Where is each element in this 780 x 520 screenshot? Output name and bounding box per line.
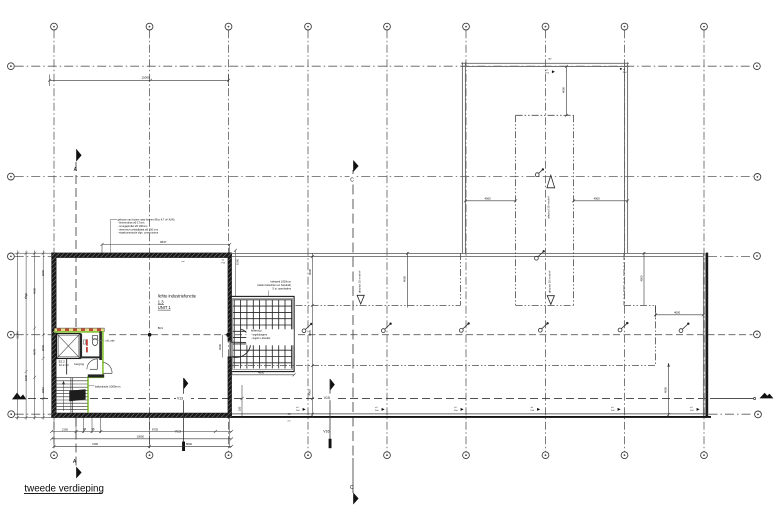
svg-text:9637: 9637 — [160, 240, 167, 244]
svg-text:4800: 4800 — [258, 370, 265, 374]
svg-text:V16: V16 — [323, 430, 329, 434]
svg-text:4000: 4000 — [594, 196, 601, 200]
svg-text:- staalconstructie vlgs. const: - staalconstructie vlgs. constructeur — [118, 231, 159, 235]
svg-text:12.2 m²: 12.2 m² — [59, 363, 69, 367]
svg-text:berging: berging — [74, 362, 84, 366]
svg-text:4000: 4000 — [403, 275, 407, 282]
svg-text:4000: 4000 — [664, 386, 668, 393]
svg-text:1.3: 1.3 — [158, 300, 164, 305]
svg-text:Peil: Peil — [611, 410, 615, 412]
svg-text:1500: 1500 — [236, 258, 240, 265]
svg-text:4000: 4000 — [33, 287, 37, 294]
svg-text:- tegeldragers: - tegeldragers — [251, 332, 268, 336]
svg-text:7200: 7200 — [92, 442, 98, 446]
svg-text:C: C — [350, 485, 354, 491]
svg-text:BC1: BC1 — [158, 326, 164, 330]
svg-text:3210: 3210 — [41, 386, 45, 393]
svg-text:csl_nds: csl_nds — [106, 338, 116, 342]
svg-text:- tegels / afonder: - tegels / afonder — [251, 336, 271, 340]
svg-text:4000: 4000 — [485, 196, 492, 200]
svg-text:4000: 4000 — [308, 389, 312, 395]
svg-text:16240: 16240 — [15, 331, 19, 339]
svg-text:4000: 4000 — [308, 268, 312, 275]
svg-text:2000: 2000 — [41, 344, 45, 351]
svg-text:afschot 10 mm/m¹: afschot 10 mm/m¹ — [357, 271, 361, 293]
svg-text:(delen beluchten en handrail): (delen beluchten en handrail) — [257, 283, 291, 287]
svg-text:lichte industriefunctie: lichte industriefunctie — [158, 293, 197, 298]
svg-text:tweede verdieping: tweede verdieping — [24, 483, 104, 494]
svg-text:4870: 4870 — [308, 329, 312, 336]
svg-text:8000: 8000 — [186, 442, 192, 446]
svg-text:5730: 5730 — [24, 292, 28, 299]
svg-text:4000: 4000 — [561, 86, 565, 93]
svg-text:Peil: Peil — [222, 263, 226, 265]
svg-text:balustrade 1000mm: balustrade 1000mm — [95, 384, 121, 388]
svg-text:UNIT 1: UNIT 1 — [158, 305, 172, 310]
svg-text:6230: 6230 — [24, 374, 28, 381]
svg-text:afschot 10 mm/m¹: afschot 10 mm/m¹ — [547, 271, 551, 293]
svg-text:15000: 15000 — [142, 76, 150, 80]
svg-text:V13: V13 — [177, 396, 183, 400]
svg-text:Peil: Peil — [623, 72, 627, 74]
svg-text:4000: 4000 — [674, 310, 681, 314]
svg-text:2200: 2200 — [41, 269, 45, 276]
svg-text:4000: 4000 — [218, 343, 222, 350]
svg-text:Peil: Peil — [375, 410, 379, 412]
svg-text:Peil: Peil — [531, 410, 535, 412]
svg-text:8735: 8735 — [152, 427, 158, 431]
svg-text:Peil: Peil — [690, 410, 694, 412]
svg-text:4075: 4075 — [33, 348, 37, 355]
svg-text:V15: V15 — [324, 396, 330, 400]
svg-text:Peil: Peil — [296, 410, 300, 412]
svg-text:4000: 4000 — [639, 275, 643, 282]
svg-text:keilering /: keilering / — [251, 329, 262, 333]
svg-text:2150: 2150 — [62, 427, 68, 431]
svg-text:Peil: Peil — [454, 410, 458, 412]
svg-text:afschot 10 mm/m¹: afschot 10 mm/m¹ — [546, 196, 550, 218]
svg-text:C: C — [350, 178, 354, 184]
svg-text:10050: 10050 — [137, 435, 145, 439]
svg-text:5 st. openladers: 5 st. openladers — [273, 286, 292, 290]
svg-text:Peil: Peil — [545, 72, 549, 74]
svg-text:hekwerk 1000mm: hekwerk 1000mm — [271, 279, 291, 283]
svg-text:150: 150 — [237, 406, 241, 411]
